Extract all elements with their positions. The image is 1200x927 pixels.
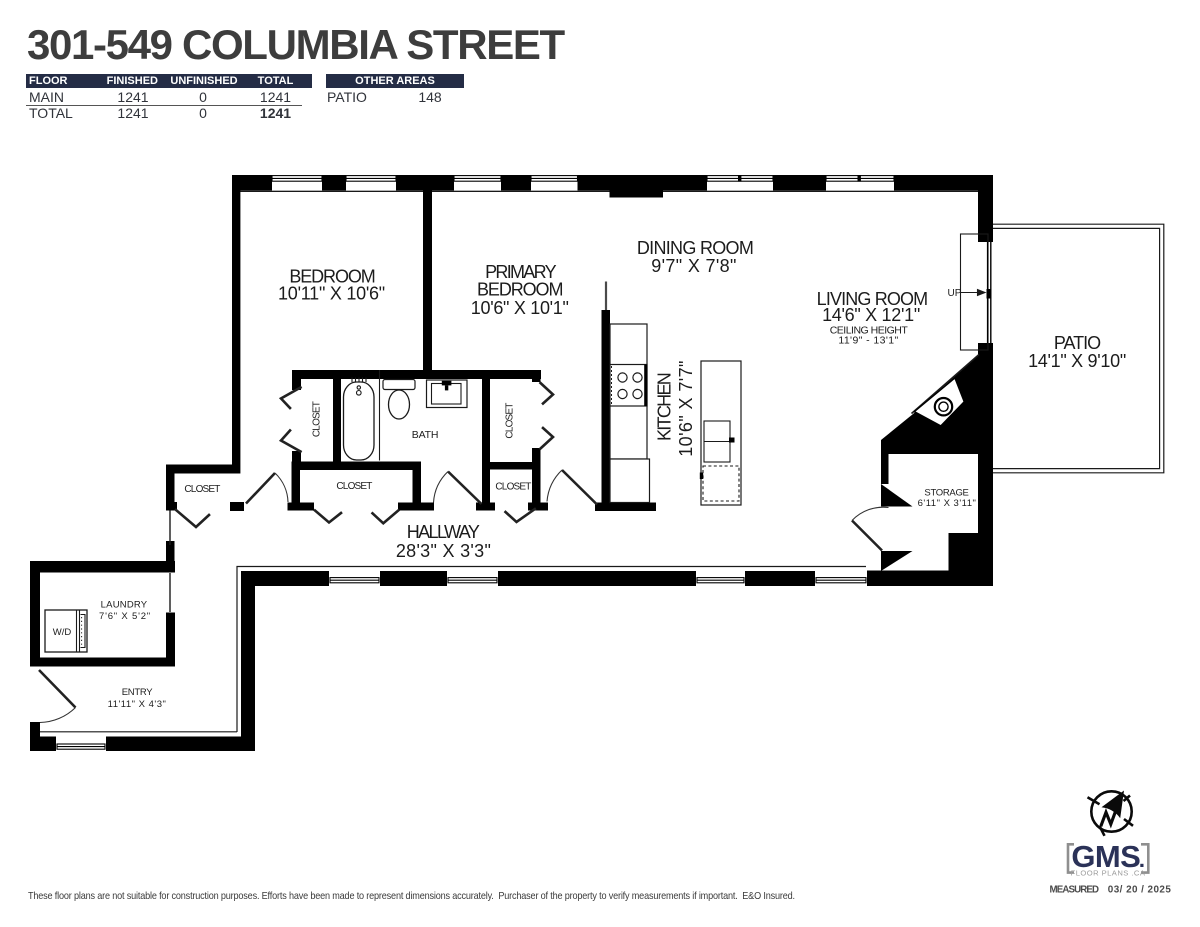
svg-text:HALLWAY: HALLWAY: [407, 522, 480, 542]
svg-text:CLOSET: CLOSET: [184, 484, 220, 495]
svg-text:KITCHEN: KITCHEN: [655, 373, 675, 441]
svg-text:11'11" X 4'3": 11'11" X 4'3": [108, 699, 167, 710]
svg-text:CLOSET: CLOSET: [505, 403, 516, 439]
svg-text:MEASURED: MEASURED: [1050, 885, 1099, 896]
svg-text:7'6" X 5'2": 7'6" X 5'2": [99, 611, 151, 622]
svg-text:28'3" X 3'3": 28'3" X 3'3": [396, 541, 491, 561]
svg-text:10'6" X 7'7": 10'6" X 7'7": [676, 360, 696, 457]
svg-text:CLOSET: CLOSET: [312, 401, 323, 437]
svg-text:ENTRY: ENTRY: [122, 687, 153, 698]
svg-text:14'1" X 9'10": 14'1" X 9'10": [1028, 351, 1126, 371]
svg-text:LAUNDRY: LAUNDRY: [101, 599, 148, 610]
svg-text:10'11" X 10'6": 10'11" X 10'6": [278, 283, 385, 303]
svg-text:BEDROOM: BEDROOM: [477, 280, 562, 300]
svg-text:10'6" X 10'1": 10'6" X 10'1": [471, 298, 569, 318]
svg-text:03/ 20 / 2025: 03/ 20 / 2025: [1108, 885, 1172, 896]
svg-text:FLOOR PLANS .CA: FLOOR PLANS .CA: [1071, 869, 1146, 878]
svg-text:W/D: W/D: [53, 627, 72, 638]
svg-text:CLOSET: CLOSET: [336, 481, 372, 492]
svg-text:11'9" - 13'1": 11'9" - 13'1": [838, 334, 898, 346]
svg-text:14'6" X 12'1": 14'6" X 12'1": [822, 305, 920, 325]
svg-text:9'7" X 7'8": 9'7" X 7'8": [651, 256, 737, 276]
svg-text:6'11" X 3'11": 6'11" X 3'11": [918, 498, 977, 509]
svg-text:STORAGE: STORAGE: [924, 487, 968, 498]
svg-text:CLOSET: CLOSET: [495, 481, 531, 492]
svg-text:BATH: BATH: [412, 429, 438, 441]
svg-text:DINING ROOM: DINING ROOM: [637, 238, 753, 258]
svg-text:UP: UP: [948, 288, 962, 299]
